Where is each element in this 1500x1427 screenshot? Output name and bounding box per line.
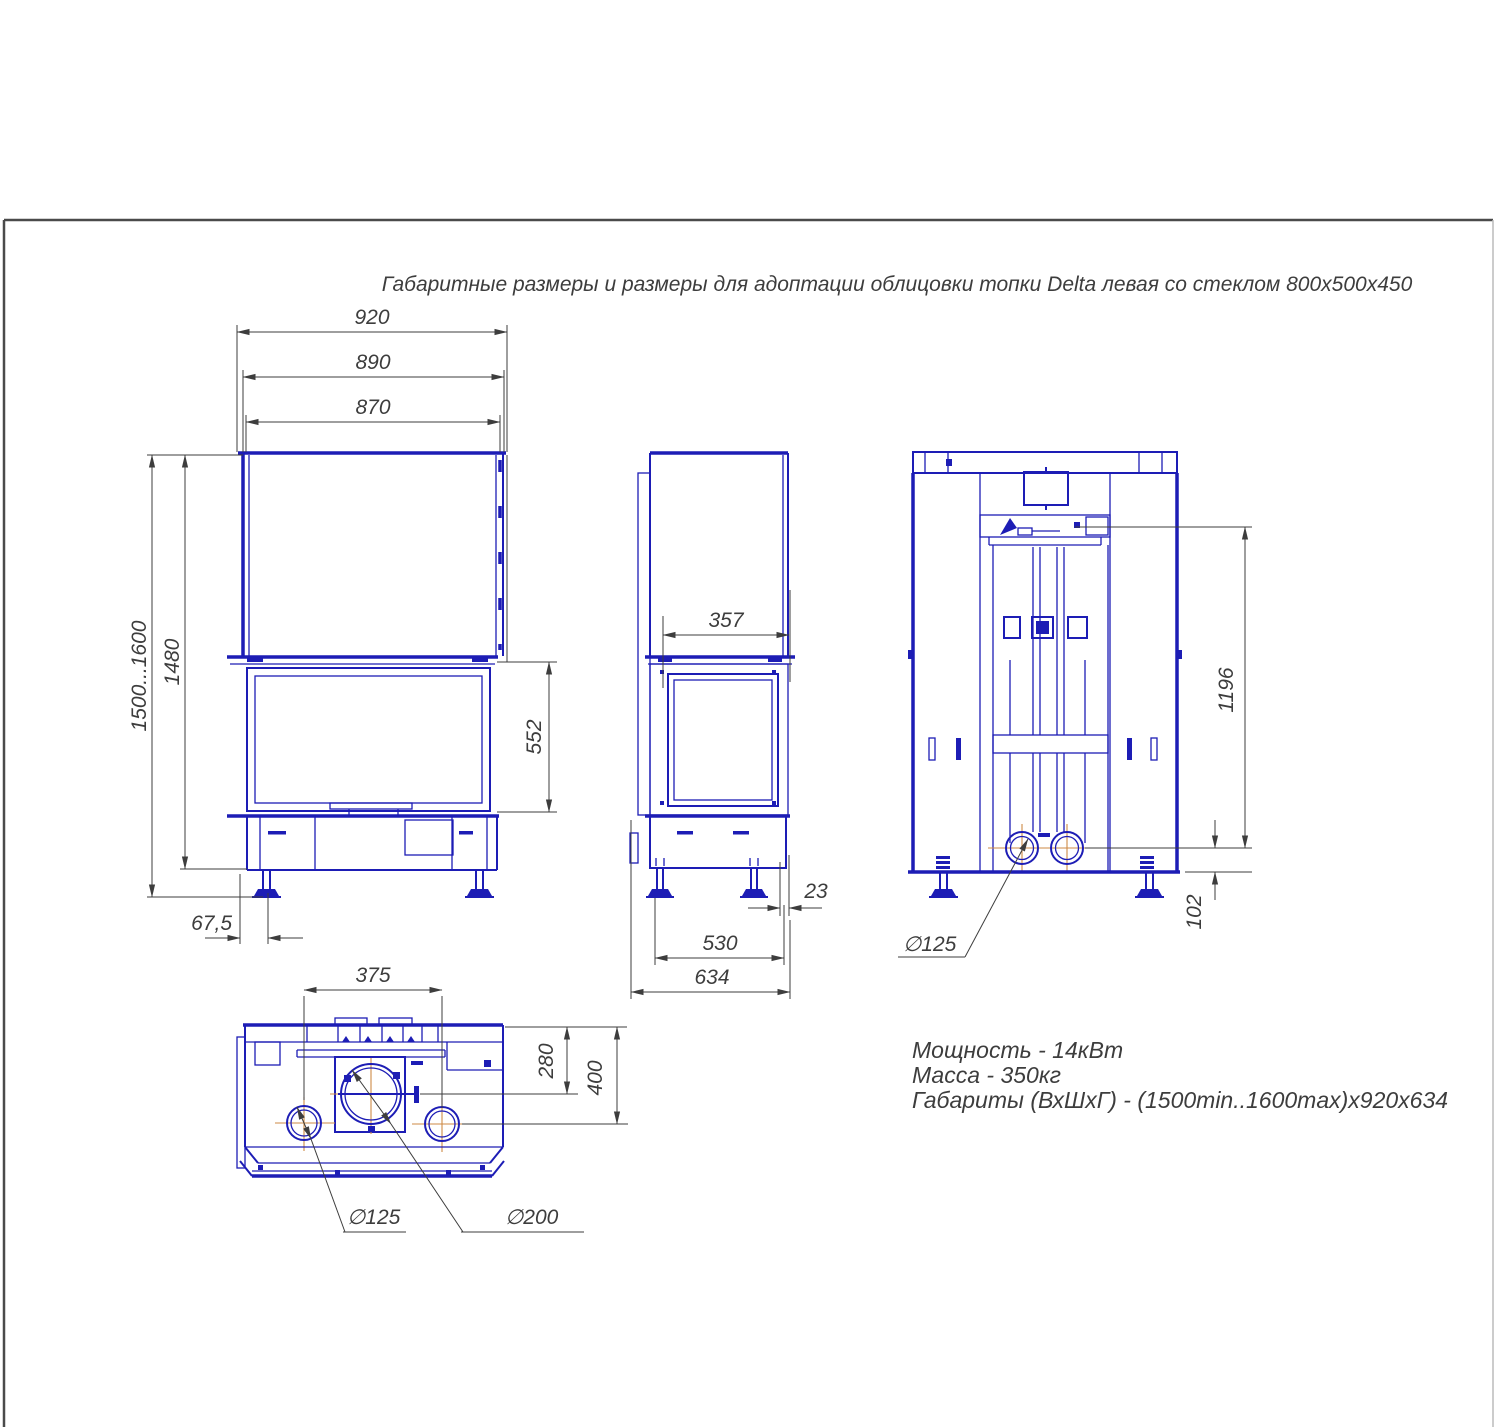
spec-mass: Масса - 350кг (912, 1062, 1061, 1088)
dim-rear-pipe-height: 102 (1183, 894, 1206, 929)
dim-top-flue-diameter: ∅200 (505, 1206, 559, 1229)
dim-side-depth-total: 634 (694, 966, 729, 989)
dim-rear-collar-height: 1196 (1215, 667, 1238, 712)
side-view-dimensions: 357 23 530 634 (631, 590, 828, 999)
spec-power: Мощность - 14кВт (912, 1037, 1123, 1063)
sheet-border (4, 220, 1493, 1427)
dim-top-flue-depth: 280 (535, 1043, 558, 1079)
dim-top-pipe-depth: 400 (584, 1060, 607, 1095)
dim-front-height-body: 1480 (161, 638, 184, 685)
dim-front-width-outer: 920 (354, 306, 389, 329)
dim-front-door-height: 552 (523, 719, 546, 754)
dim-side-glass-depth: 357 (708, 609, 744, 632)
dim-side-gap: 23 (803, 880, 828, 903)
dim-front-width-mid: 890 (355, 351, 390, 374)
top-view-dimensions: 375 280 400 ∅125 ∅200 (297, 964, 628, 1232)
side-view (630, 453, 795, 897)
front-view (227, 452, 506, 897)
drawing-title: Габаритные размеры и размеры для адоптац… (382, 273, 1413, 296)
ashpan-door (405, 820, 453, 855)
spec-overall-dims: Габариты (ВхШхГ) - (1500min..1600max)х92… (912, 1087, 1448, 1113)
rear-view (908, 452, 1182, 897)
dim-front-height-range: 1500...1600 (128, 620, 151, 731)
top-view (237, 1018, 504, 1176)
dim-top-pipe-diameter: ∅125 (347, 1206, 401, 1229)
dim-rear-pipe-diameter: ∅125 (903, 933, 957, 956)
front-view-dimensions: 920 890 870 1500...1600 1480 552 67,5 (128, 306, 557, 944)
dim-side-leg-span: 530 (702, 932, 737, 955)
dim-front-width-glass: 870 (355, 396, 390, 419)
dim-top-pipe-spacing: 375 (355, 964, 390, 987)
spec-block: Мощность - 14кВт Масса - 350кг Габариты … (912, 1037, 1448, 1113)
technical-drawing: Габаритные размеры и размеры для адоптац… (0, 0, 1500, 1427)
dim-front-leg-offset: 67,5 (191, 912, 232, 935)
drawing-sheet: Габаритные размеры и размеры для адоптац… (0, 0, 1500, 1427)
